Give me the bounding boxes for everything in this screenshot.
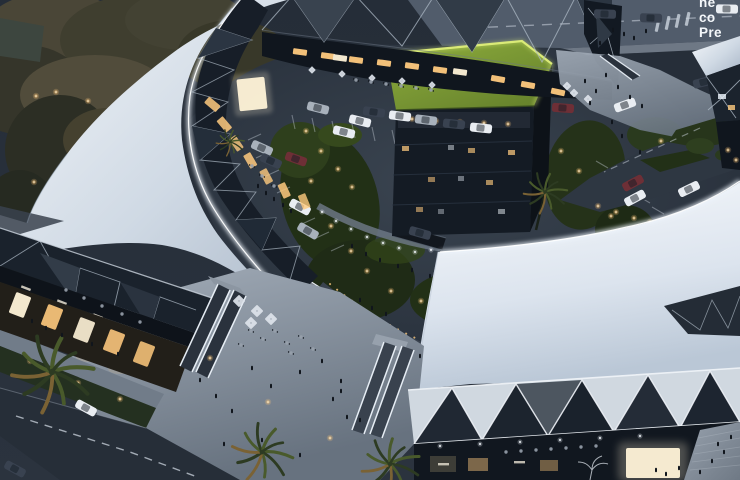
shop-sign [438, 463, 449, 465]
aerial-dusk-mall-render: ne co Pre [0, 0, 740, 480]
car [594, 9, 616, 19]
watermark-line-3: Pre [699, 25, 722, 40]
car [552, 103, 575, 114]
car [716, 4, 738, 13]
watermark-line-2: co [699, 10, 716, 25]
car [640, 13, 662, 23]
watermark-line-1: ne [699, 0, 716, 10]
shop-sign [514, 461, 525, 463]
render-canvas: ne co Pre [0, 0, 740, 480]
